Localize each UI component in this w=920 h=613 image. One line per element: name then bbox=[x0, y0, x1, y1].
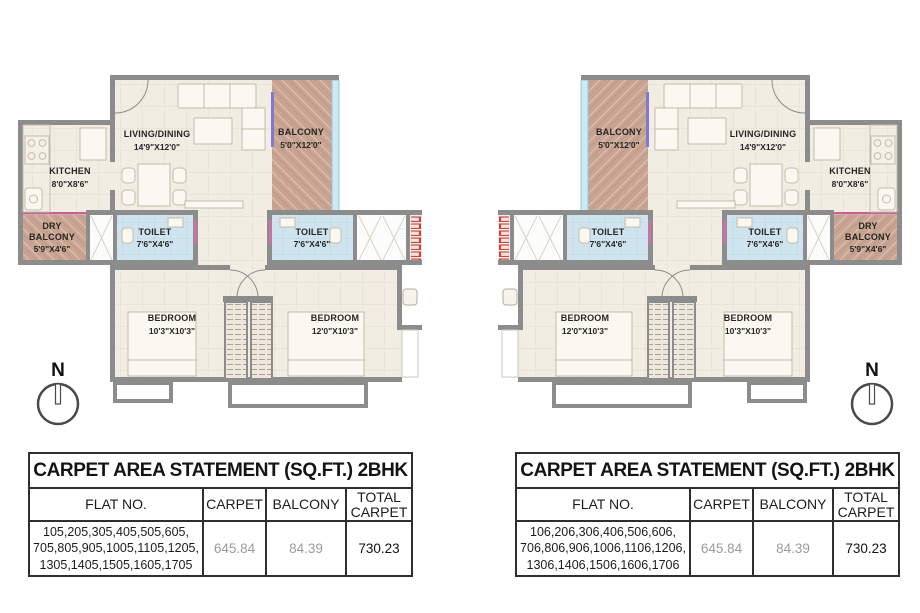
cell-flat-numbers: 106,206,306,406,506,606, 706,806,906,100… bbox=[517, 522, 689, 575]
room-dims-balcony: 5'0"X12'0" bbox=[598, 140, 639, 150]
header-balcony: BALCONY bbox=[754, 489, 832, 520]
floor-plans-canvas: LIVING/DINING 14'9"X12'0" BALCONY 5'0"X1… bbox=[0, 0, 920, 450]
room-label-toilet-2: TOILET bbox=[295, 227, 328, 237]
cell-total-carpet: 730.23 bbox=[347, 522, 411, 575]
room-dims-bedroom-small: 10'3"X10'3" bbox=[725, 326, 771, 336]
room-dims-balcony: 5'0"X12'0" bbox=[280, 140, 321, 150]
room-label-toilet-2: TOILET bbox=[591, 227, 624, 237]
room-dims-kitchen: 8'0"X8'6" bbox=[832, 179, 869, 189]
north-label: N bbox=[51, 360, 65, 381]
room-label-toilet-1: TOILET bbox=[748, 227, 781, 237]
header-flat-no: FLAT NO. bbox=[517, 489, 689, 520]
room-dims-toilet-2: 7'6"X4'6" bbox=[590, 239, 627, 249]
room-dims-living: 14'9"X12'0" bbox=[134, 142, 180, 152]
room-label-balcony: BALCONY bbox=[278, 127, 324, 137]
table-title: CARPET AREA STATEMENT (SQ.FT.) 2BHK bbox=[517, 454, 898, 487]
north-compass-left: N bbox=[38, 360, 78, 424]
north-label: N bbox=[865, 360, 879, 381]
flat-numbers-line1: 105,205,305,405,505,605, bbox=[43, 524, 189, 540]
carpet-area-table-right: CARPET AREA STATEMENT (SQ.FT.) 2BHK FLAT… bbox=[515, 452, 900, 577]
flat-numbers-line2: 705,805,905,1005,1105,1205, bbox=[33, 540, 199, 556]
room-dims-toilet-1: 7'6"X4'6" bbox=[137, 239, 174, 249]
table-title: CARPET AREA STATEMENT (SQ.FT.) 2BHK bbox=[30, 454, 411, 487]
header-total-carpet: TOTAL CARPET bbox=[347, 489, 411, 520]
cell-flat-numbers: 105,205,305,405,505,605, 705,805,905,100… bbox=[30, 522, 202, 575]
room-label-living: LIVING/DINING bbox=[124, 129, 191, 139]
room-label-dry-2: BALCONY bbox=[29, 232, 75, 242]
flat-numbers-line2: 706,806,906,1006,1106,1206, bbox=[520, 540, 686, 556]
room-label-living: LIVING/DINING bbox=[730, 129, 797, 139]
floor-plan-right-geometry bbox=[498, 75, 902, 406]
room-dims-living: 14'9"X12'0" bbox=[740, 142, 786, 152]
carpet-area-table-left: CARPET AREA STATEMENT (SQ.FT.) 2BHK FLAT… bbox=[28, 452, 413, 577]
floor-plan-left-geometry bbox=[18, 75, 422, 406]
room-label-bedroom-large: BEDROOM bbox=[311, 313, 359, 323]
cell-balcony-area: 84.39 bbox=[754, 522, 832, 575]
header-carpet: CARPET bbox=[691, 489, 752, 520]
cell-carpet-area: 645.84 bbox=[691, 522, 752, 575]
header-balcony: BALCONY bbox=[267, 489, 345, 520]
room-dims-bedroom-small: 10'3"X10'3" bbox=[149, 326, 195, 336]
room-dims-kitchen: 8'0"X8'6" bbox=[52, 179, 89, 189]
room-label-dry-2: BALCONY bbox=[845, 232, 891, 242]
flat-numbers-line1: 106,206,306,406,506,606, bbox=[530, 524, 676, 540]
header-total-carpet: TOTAL CARPET bbox=[834, 489, 898, 520]
room-dims-toilet-1: 7'6"X4'6" bbox=[747, 239, 784, 249]
room-label-bedroom-large: BEDROOM bbox=[561, 313, 609, 323]
room-label-toilet-1: TOILET bbox=[138, 227, 171, 237]
room-dims-dry: 5'9"X4'6" bbox=[850, 244, 887, 254]
cell-balcony-area: 84.39 bbox=[267, 522, 345, 575]
floor-plan-page: { "rooms": { "living": {"name": "LIVING/… bbox=[0, 0, 920, 613]
room-label-kitchen: KITCHEN bbox=[829, 166, 870, 176]
room-label-kitchen: KITCHEN bbox=[49, 166, 90, 176]
room-dims-bedroom-large: 12'0"X10'3" bbox=[312, 326, 358, 336]
cell-carpet-area: 645.84 bbox=[204, 522, 265, 575]
flat-numbers-line3: 1305,1405,1505,1605,1705 bbox=[40, 557, 193, 573]
room-label-bedroom-small: BEDROOM bbox=[148, 313, 196, 323]
header-flat-no: FLAT NO. bbox=[30, 489, 202, 520]
cell-total-carpet: 730.23 bbox=[834, 522, 898, 575]
header-carpet: CARPET bbox=[204, 489, 265, 520]
room-label-dry-1: DRY bbox=[42, 221, 61, 231]
room-dims-bedroom-large: 12'0"X10'3" bbox=[562, 326, 608, 336]
north-compass-right: N bbox=[852, 360, 892, 424]
room-label-dry-1: DRY bbox=[858, 221, 877, 231]
room-label-bedroom-small: BEDROOM bbox=[724, 313, 772, 323]
room-dims-dry: 5'9"X4'6" bbox=[34, 244, 71, 254]
room-label-balcony: BALCONY bbox=[596, 127, 642, 137]
room-dims-toilet-2: 7'6"X4'6" bbox=[294, 239, 331, 249]
flat-numbers-line3: 1306,1406,1506,1606,1706 bbox=[527, 557, 680, 573]
